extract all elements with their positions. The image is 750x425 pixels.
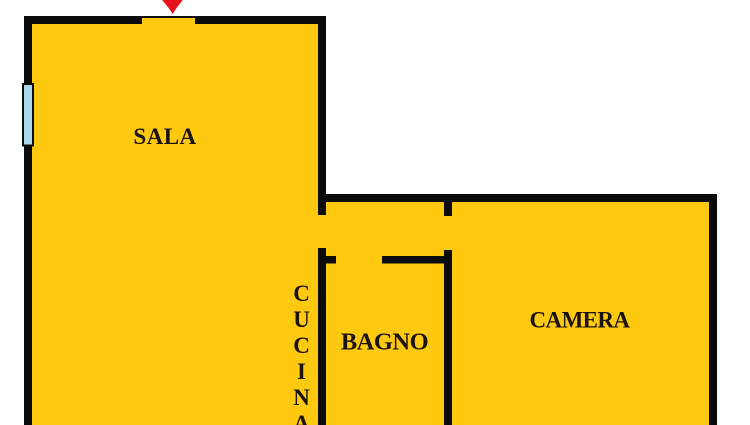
svg-text:CAMERA: CAMERA (530, 308, 631, 333)
svg-text:A: A (293, 411, 310, 425)
svg-text:BAGNO: BAGNO (341, 329, 428, 356)
svg-text:I: I (297, 359, 306, 384)
svg-text:N: N (293, 385, 310, 410)
svg-text:U: U (293, 307, 310, 332)
svg-text:C: C (293, 333, 310, 358)
svg-text:SALA: SALA (133, 124, 196, 149)
svg-text:C: C (293, 281, 310, 306)
